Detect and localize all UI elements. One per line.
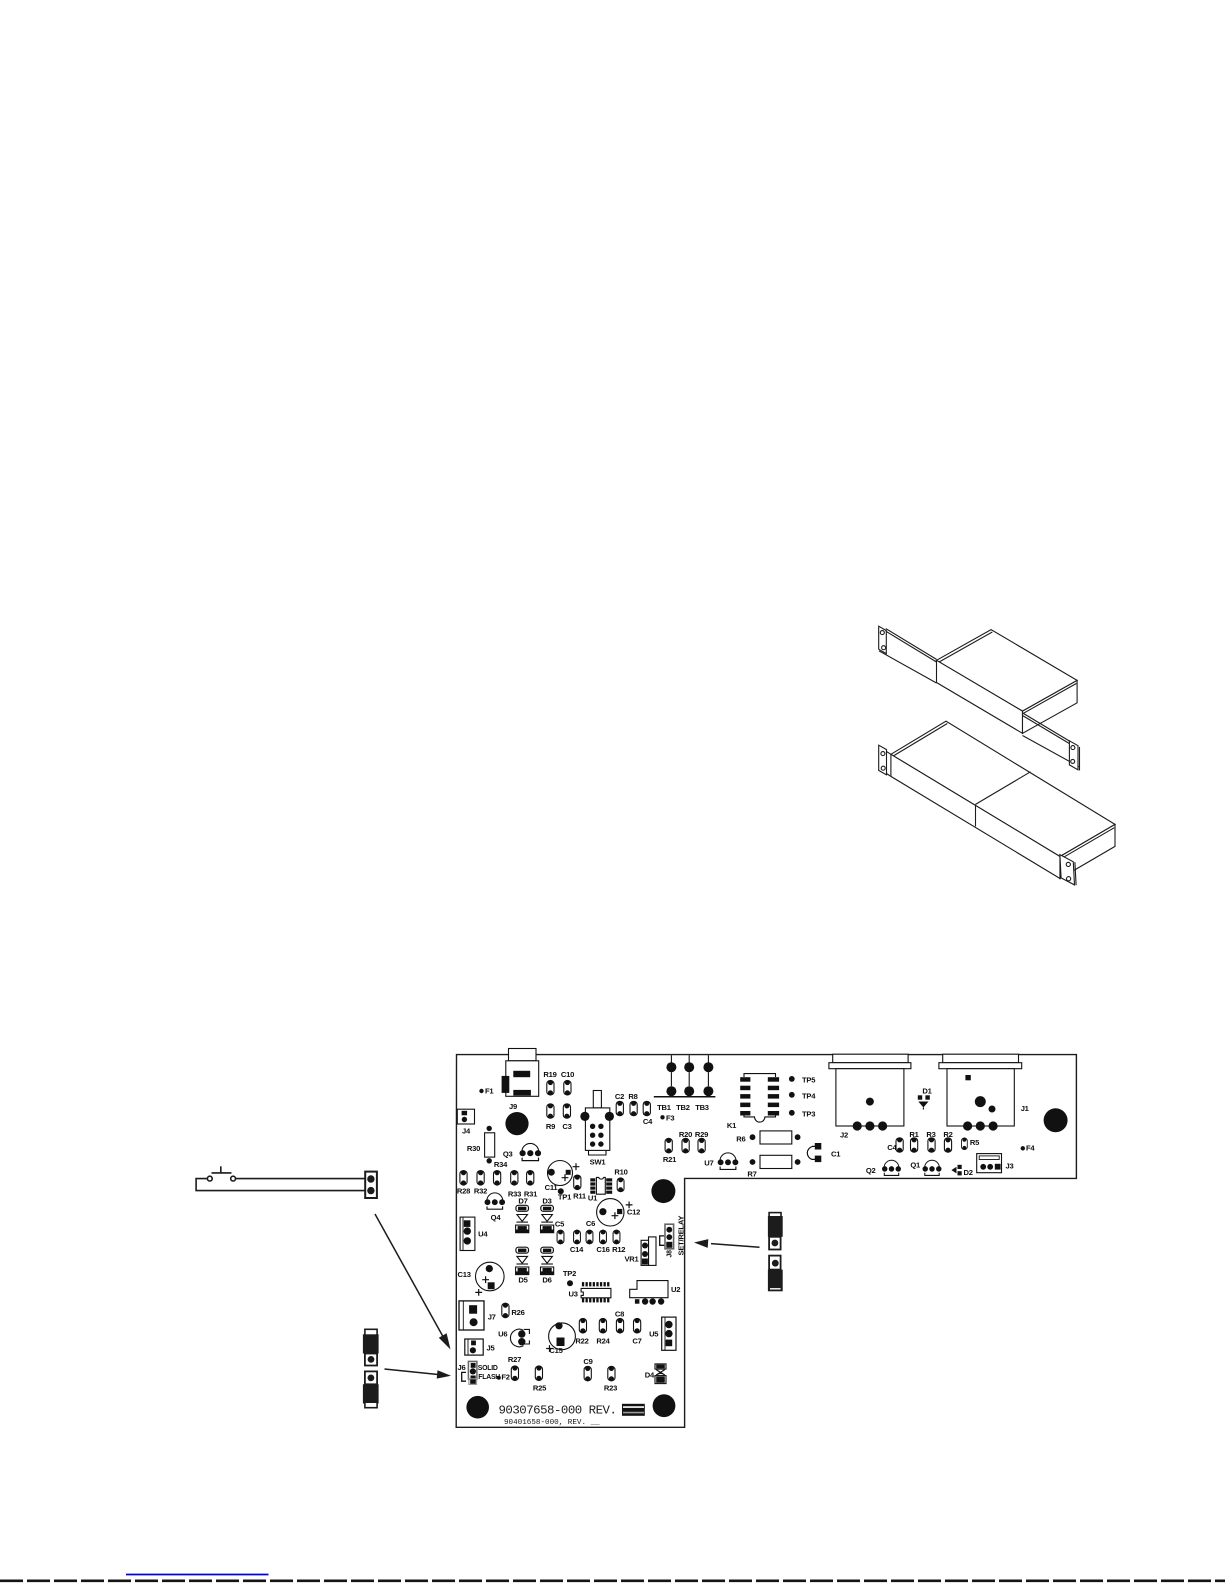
svg-text:TP5: TP5 bbox=[802, 1076, 816, 1085]
svg-text:C9: C9 bbox=[583, 1357, 592, 1366]
svg-text:R28: R28 bbox=[457, 1187, 470, 1196]
svg-text:TP3: TP3 bbox=[802, 1110, 815, 1119]
svg-text:C13: C13 bbox=[458, 1270, 471, 1279]
svg-text:U4: U4 bbox=[478, 1230, 488, 1239]
svg-text:R27: R27 bbox=[508, 1355, 521, 1364]
svg-text:J8: J8 bbox=[667, 1250, 674, 1258]
svg-text:Q1: Q1 bbox=[910, 1161, 921, 1170]
svg-text:R2: R2 bbox=[943, 1130, 952, 1139]
svg-text:SOLID: SOLID bbox=[478, 1365, 498, 1372]
svg-text:J1: J1 bbox=[1021, 1104, 1030, 1113]
svg-text:J5: J5 bbox=[487, 1344, 496, 1353]
svg-text:D3: D3 bbox=[542, 1197, 551, 1206]
svg-text:R7: R7 bbox=[747, 1170, 756, 1179]
svg-text:D1: D1 bbox=[922, 1087, 932, 1096]
svg-text:C16: C16 bbox=[596, 1245, 609, 1254]
svg-text:TB3: TB3 bbox=[695, 1103, 709, 1112]
svg-text:J6: J6 bbox=[458, 1363, 466, 1372]
svg-text:F3: F3 bbox=[666, 1114, 674, 1123]
svg-text:Q3: Q3 bbox=[503, 1150, 513, 1159]
svg-text:C12: C12 bbox=[627, 1208, 640, 1217]
svg-text:U3: U3 bbox=[568, 1290, 577, 1299]
svg-text:U6: U6 bbox=[498, 1330, 507, 1339]
svg-text:TP2: TP2 bbox=[563, 1269, 576, 1278]
svg-text:VR1: VR1 bbox=[624, 1255, 639, 1264]
svg-text:R11: R11 bbox=[573, 1192, 587, 1201]
svg-text:C6: C6 bbox=[586, 1219, 595, 1228]
svg-text:U2: U2 bbox=[671, 1285, 680, 1294]
svg-text:TP4: TP4 bbox=[802, 1092, 816, 1101]
svg-text:R30: R30 bbox=[467, 1144, 480, 1153]
svg-text:D5: D5 bbox=[518, 1276, 528, 1285]
svg-text:R12: R12 bbox=[612, 1245, 625, 1254]
svg-text:F1: F1 bbox=[485, 1087, 494, 1096]
svg-text:J9: J9 bbox=[509, 1102, 517, 1111]
svg-text:C3: C3 bbox=[562, 1122, 571, 1131]
svg-text:F2: F2 bbox=[501, 1373, 509, 1382]
svg-text:C7: C7 bbox=[632, 1337, 641, 1346]
svg-text:D2: D2 bbox=[964, 1168, 973, 1177]
svg-text:R19: R19 bbox=[543, 1070, 556, 1079]
svg-text:R21: R21 bbox=[663, 1155, 677, 1164]
svg-text:R6: R6 bbox=[736, 1135, 745, 1144]
svg-text:R26: R26 bbox=[511, 1308, 524, 1317]
svg-text:J4: J4 bbox=[462, 1127, 471, 1136]
svg-text:FLASH: FLASH bbox=[478, 1374, 500, 1381]
svg-text:C2: C2 bbox=[615, 1092, 624, 1101]
svg-text:R29: R29 bbox=[695, 1130, 708, 1139]
svg-text:K1: K1 bbox=[727, 1121, 737, 1130]
svg-text:D7: D7 bbox=[518, 1197, 527, 1206]
svg-text:F4: F4 bbox=[1026, 1144, 1035, 1153]
svg-text:J2: J2 bbox=[840, 1131, 848, 1140]
svg-text:C4: C4 bbox=[887, 1143, 897, 1152]
svg-text:90307658-000 REV.: 90307658-000 REV. bbox=[499, 1404, 617, 1418]
svg-text:C1: C1 bbox=[831, 1150, 841, 1159]
svg-text:C15: C15 bbox=[549, 1346, 563, 1355]
svg-text:R32: R32 bbox=[474, 1187, 487, 1196]
svg-text:D6: D6 bbox=[542, 1276, 551, 1285]
svg-text:U1: U1 bbox=[588, 1194, 598, 1203]
svg-text:J7: J7 bbox=[488, 1313, 496, 1322]
svg-text:R23: R23 bbox=[604, 1384, 617, 1393]
svg-text:C5: C5 bbox=[555, 1220, 565, 1229]
svg-text:SW1: SW1 bbox=[590, 1158, 607, 1167]
svg-text:R20: R20 bbox=[679, 1130, 692, 1139]
svg-text:C14: C14 bbox=[570, 1245, 584, 1254]
svg-text:J3: J3 bbox=[1006, 1162, 1014, 1171]
svg-text:R9: R9 bbox=[546, 1122, 555, 1131]
svg-text:R24: R24 bbox=[596, 1337, 610, 1346]
svg-text:R8: R8 bbox=[628, 1092, 637, 1101]
svg-text:C8: C8 bbox=[615, 1310, 624, 1319]
svg-text:C11: C11 bbox=[545, 1183, 559, 1192]
svg-text:R5: R5 bbox=[970, 1138, 980, 1147]
svg-text:TB2: TB2 bbox=[676, 1103, 690, 1112]
svg-text:U7: U7 bbox=[704, 1159, 713, 1168]
svg-text:R34: R34 bbox=[494, 1160, 508, 1169]
svg-text:TB1: TB1 bbox=[657, 1103, 672, 1112]
svg-text:Q4: Q4 bbox=[491, 1213, 502, 1222]
svg-text:R3: R3 bbox=[926, 1130, 935, 1139]
svg-text:90401658-000, REV. __: 90401658-000, REV. __ bbox=[504, 1419, 600, 1427]
svg-text:U5: U5 bbox=[649, 1330, 659, 1339]
svg-text:Q2: Q2 bbox=[866, 1166, 876, 1175]
svg-text:D4: D4 bbox=[645, 1371, 655, 1380]
svg-text:R10: R10 bbox=[614, 1168, 627, 1177]
svg-text:R1: R1 bbox=[909, 1130, 919, 1139]
svg-text:R25: R25 bbox=[533, 1384, 547, 1393]
svg-text:C10: C10 bbox=[561, 1070, 574, 1079]
svg-text:SET/RELAY: SET/RELAY bbox=[677, 1216, 686, 1256]
svg-text:TP1: TP1 bbox=[558, 1193, 572, 1202]
svg-text:R22: R22 bbox=[575, 1337, 588, 1346]
svg-text:C4: C4 bbox=[643, 1117, 653, 1126]
